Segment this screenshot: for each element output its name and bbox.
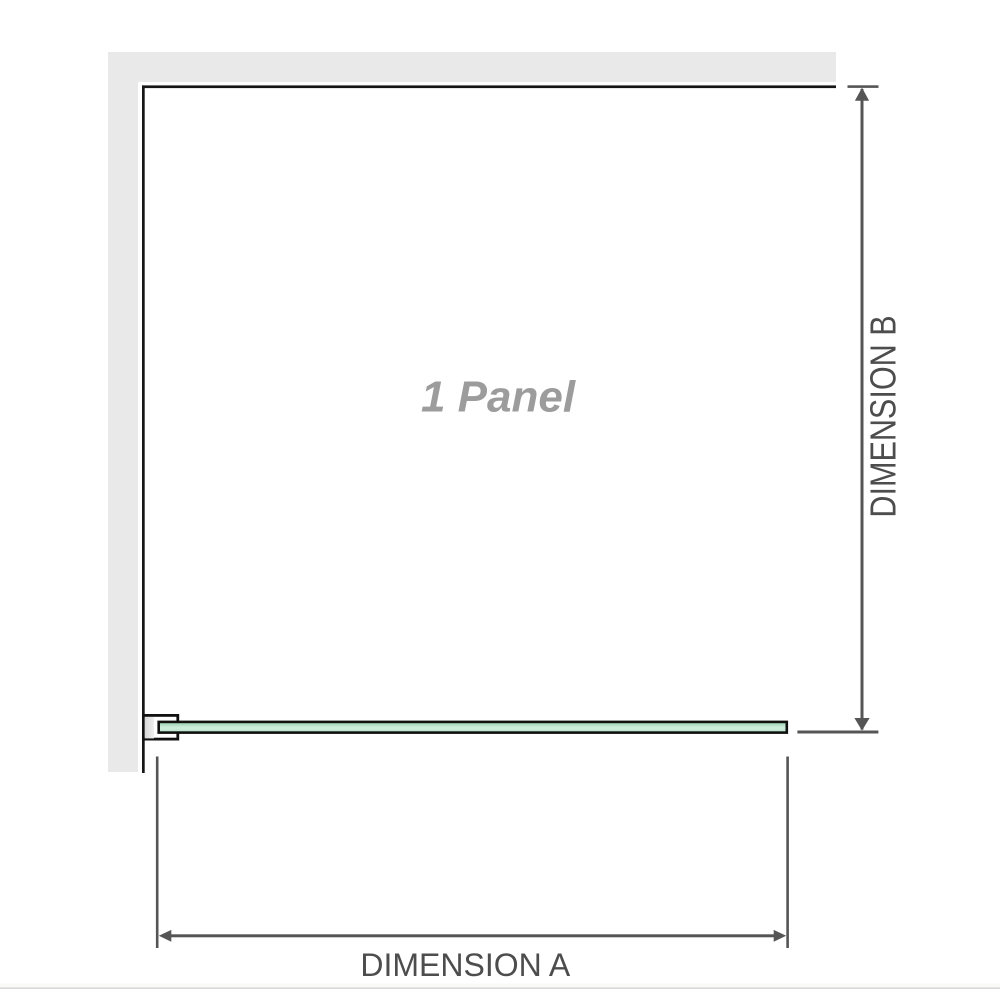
svg-text:DIMENSION B: DIMENSION B xyxy=(864,315,904,517)
svg-text:DIMENSION A: DIMENSION A xyxy=(360,947,570,983)
svg-text:1 Panel: 1 Panel xyxy=(421,373,576,422)
